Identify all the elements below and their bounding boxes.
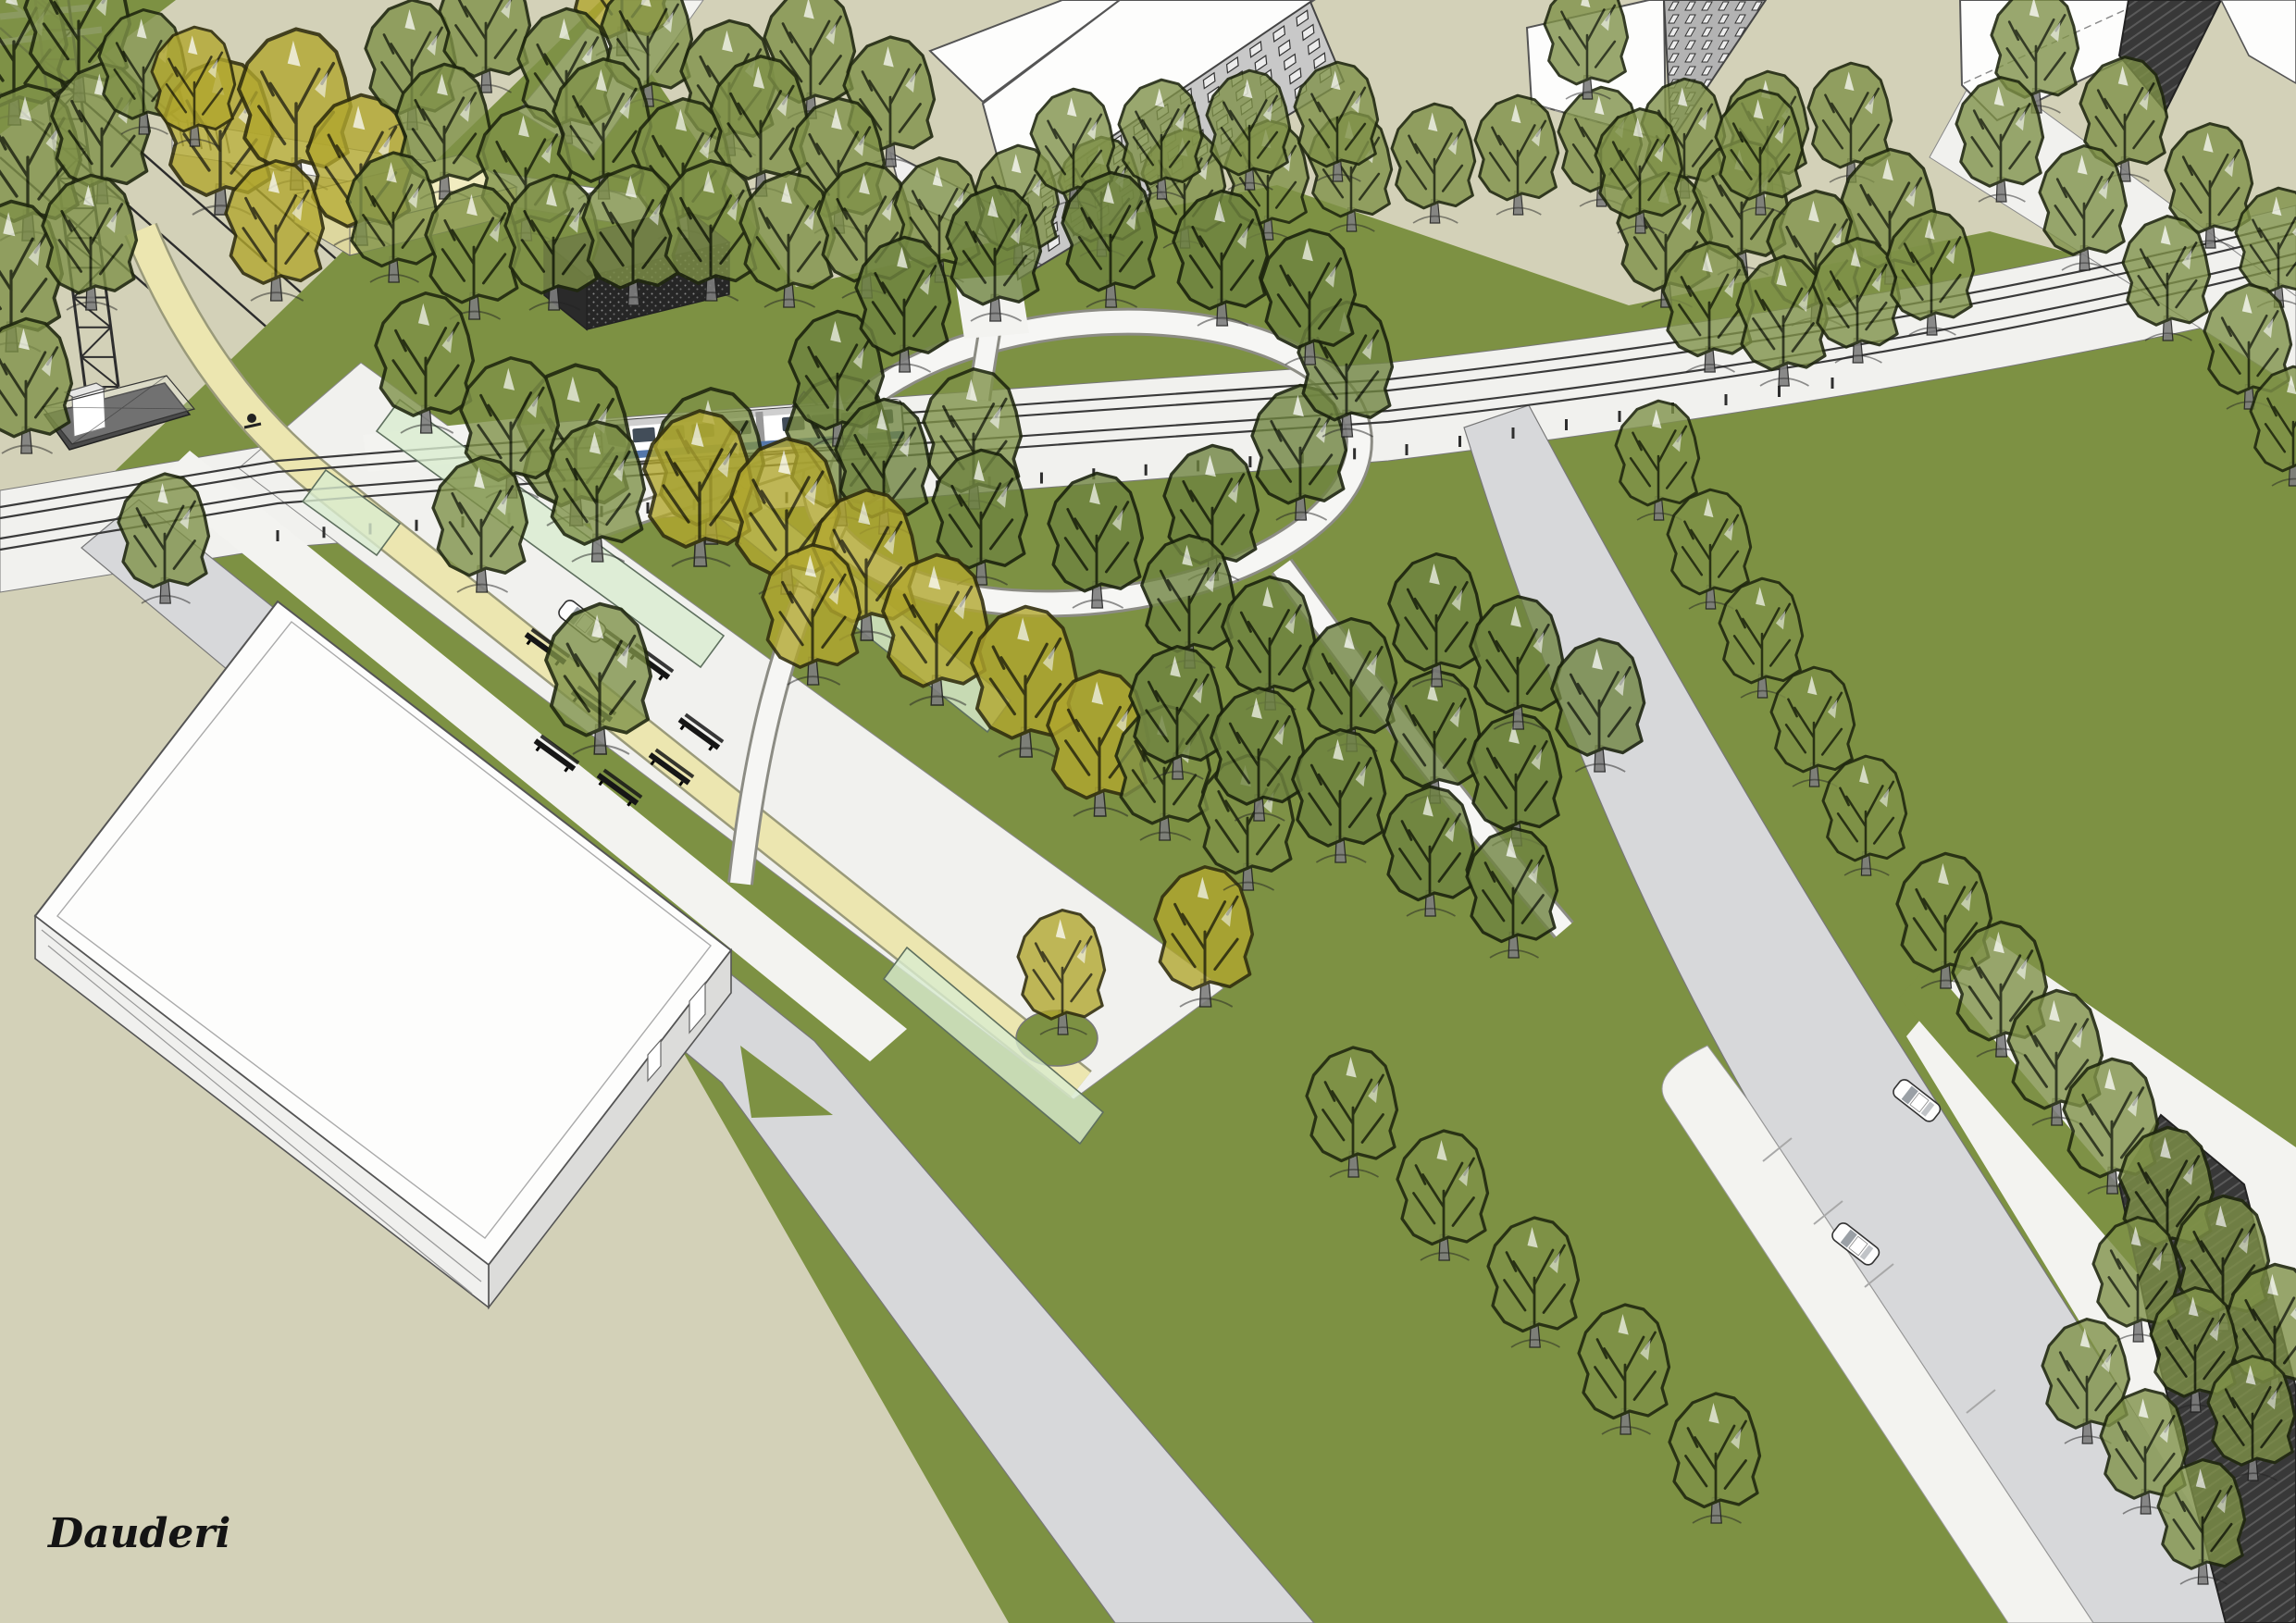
fence-post bbox=[277, 530, 279, 541]
fence-post bbox=[647, 502, 650, 514]
fence-post bbox=[1406, 444, 1409, 455]
fence-post bbox=[1831, 378, 1834, 389]
site-plan-canvas: Dauderi bbox=[0, 0, 2296, 1623]
fence-post bbox=[416, 520, 418, 531]
fence-post bbox=[1512, 427, 1515, 439]
site-label: Dauderi bbox=[46, 1510, 230, 1557]
fence-post bbox=[323, 527, 326, 538]
fence-post bbox=[1565, 419, 1568, 430]
fence-post bbox=[1725, 394, 1728, 405]
fence-post bbox=[1458, 436, 1461, 447]
fence-post bbox=[1619, 411, 1621, 422]
fence-post bbox=[1353, 448, 1356, 459]
fence-post bbox=[1145, 465, 1148, 476]
fence-post bbox=[1778, 386, 1781, 397]
architectural-rendering: Dauderi bbox=[0, 0, 2296, 1623]
fence-post bbox=[1040, 473, 1043, 484]
fence-post bbox=[1248, 456, 1251, 467]
